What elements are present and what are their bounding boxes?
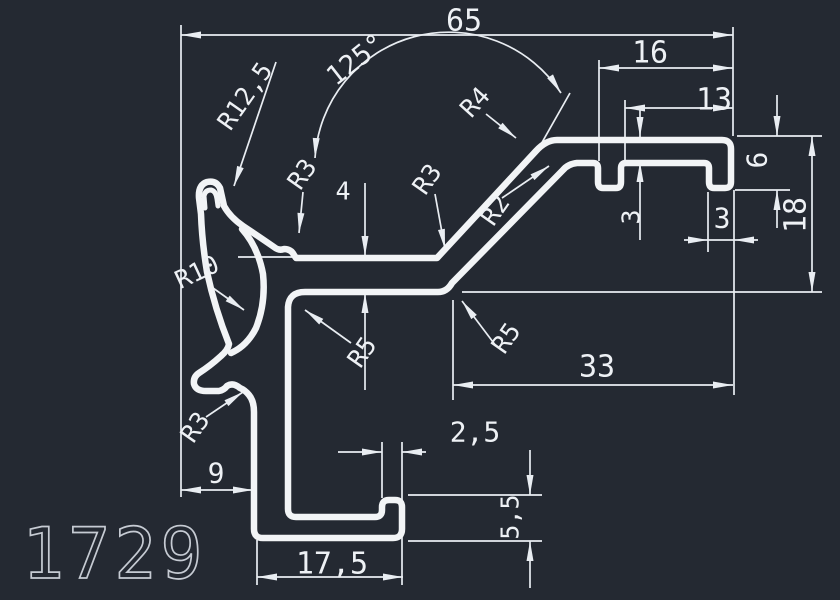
- dim-33-label: 33: [579, 350, 615, 385]
- angle-125-label: 125°: [321, 28, 391, 92]
- dim-3-flange-label: 3: [617, 209, 646, 224]
- dim-17-5-label: 17,5: [296, 547, 368, 582]
- dim-13-label: 13: [696, 83, 732, 118]
- cavity-arc-path: [231, 229, 264, 353]
- radius-r12-5-label: R12,5: [212, 57, 279, 135]
- dim-65-label: 65: [446, 4, 482, 39]
- part-number-text: 1729: [22, 513, 207, 595]
- tab-inner-line: [204, 190, 218, 208]
- radius-r3-mid-label: R3: [406, 158, 447, 199]
- cad-viewport: 65 16 13 33 9 17,5 2,5 4 3 18 5,5 6 3 12…: [0, 0, 840, 600]
- dim-2-5-label: 2,5: [450, 416, 501, 449]
- dim-16-label: 16: [632, 36, 668, 71]
- leader-r4: [486, 114, 516, 138]
- dim-6-label: 6: [741, 152, 774, 169]
- radius-r5-bend-label: R5: [485, 317, 526, 358]
- profile-geometry: [194, 140, 731, 538]
- radius-r10-label: R10: [170, 249, 223, 294]
- dim-5-5-label: 5,5: [496, 494, 525, 539]
- leader-r3-mid: [435, 194, 445, 249]
- leader-r3-top: [299, 192, 303, 233]
- radius-r3-top-label: R3: [281, 153, 322, 194]
- dim-3-tooth-label: 3: [714, 202, 731, 235]
- leader-r3-bottom: [206, 392, 243, 417]
- dim-18-label: 18: [779, 197, 814, 233]
- radius-r5-fillet-label: R5: [341, 331, 382, 372]
- leader-r5-fillet: [305, 310, 351, 343]
- dim-4-label: 4: [335, 177, 350, 206]
- cad-canvas: 65 16 13 33 9 17,5 2,5 4 3 18 5,5 6 3 12…: [0, 0, 840, 600]
- dim-9-label: 9: [208, 457, 225, 490]
- profile-outline-path: [194, 140, 731, 538]
